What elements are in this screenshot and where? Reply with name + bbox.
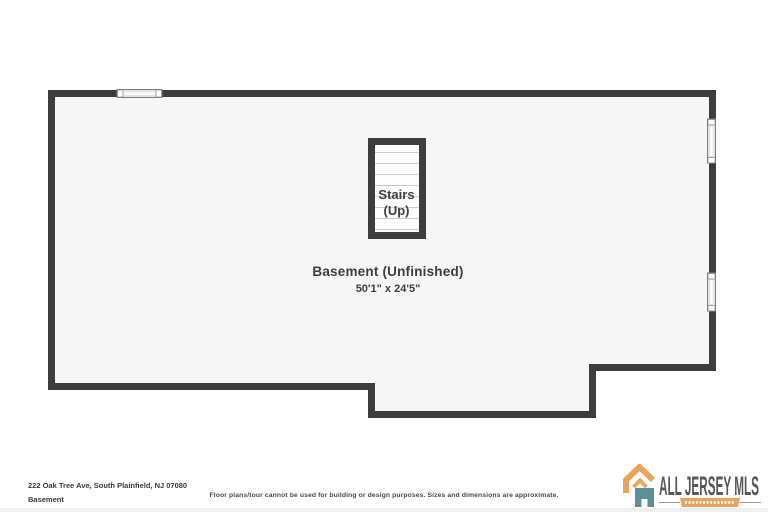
floor-plan-page: Stairs (Up) Basement (Unfinished) 50'1" … [0, 0, 768, 512]
stairs-label-line2: (Up) [384, 203, 410, 218]
room-label: Basement (Unfinished) [312, 264, 463, 279]
window-right-upper-icon [708, 119, 716, 163]
window-top-icon [117, 90, 162, 98]
stairs: Stairs (Up) [372, 142, 423, 236]
floor-plan: Stairs (Up) Basement (Unfinished) 50'1" … [0, 0, 768, 512]
image-bottom-edge [0, 508, 768, 512]
logo-text: ALL JERSEY MLS [659, 471, 759, 501]
mls-logo: ALL JERSEY MLS [622, 464, 764, 510]
house-icon [626, 467, 654, 507]
address-text: 222 Oak Tree Ave, South Plainfield, NJ 0… [28, 482, 187, 490]
window-right-lower-icon [708, 273, 716, 311]
room-dimensions: 50'1" x 24'5" [356, 283, 421, 295]
stairs-label-line1: Stairs [378, 187, 414, 202]
